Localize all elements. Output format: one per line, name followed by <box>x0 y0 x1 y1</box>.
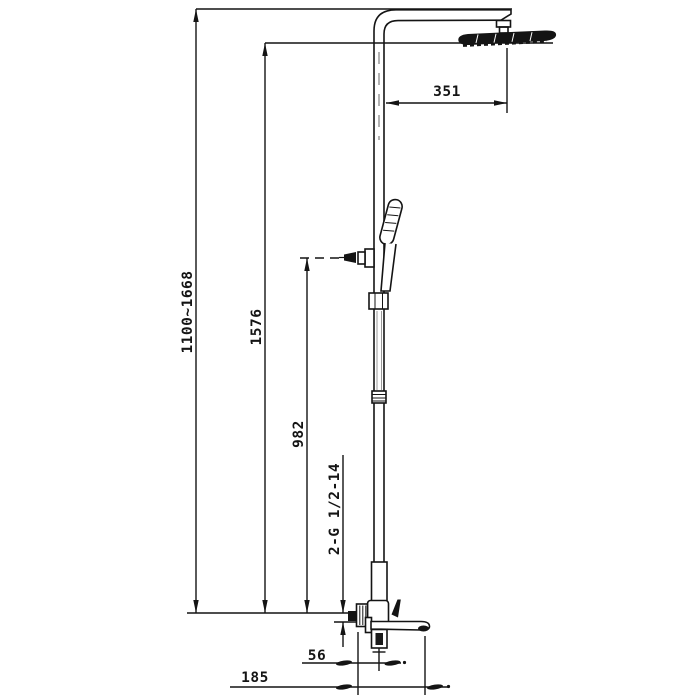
arrow-left-icon <box>386 100 399 105</box>
slider-clamp <box>365 249 374 267</box>
head-connector-block <box>497 21 511 28</box>
slider-clamp-collar <box>358 252 365 264</box>
dimension-lines-group <box>187 9 553 695</box>
technical-drawing-canvas: 1100~1668 1576 982 2-G 1/2-14 351 56 185 <box>0 0 700 700</box>
dim-label-arm-reach: 351 <box>433 84 461 100</box>
mixer-assembly <box>348 562 430 648</box>
arrowheads-group <box>193 9 507 690</box>
dim-label-wall-to-spout: 185 <box>241 670 269 686</box>
arrow-down-icon <box>193 600 198 613</box>
arrow-down-icon <box>340 600 345 613</box>
hand-shower-head <box>378 198 403 246</box>
arrow-up-icon <box>304 258 309 271</box>
arrow-up-icon <box>340 622 345 635</box>
supply-tube <box>372 562 388 601</box>
dim-label-hand-shower-height: 982 <box>291 420 307 448</box>
arrow-down-icon <box>304 600 309 613</box>
riser-pipe-inner <box>384 20 501 562</box>
escutcheon-inner <box>376 633 384 645</box>
dim-terminator <box>427 684 444 691</box>
arrow-up-icon <box>262 43 267 56</box>
spout-outlet <box>418 626 429 632</box>
diverter-lever <box>392 600 401 618</box>
dim-label-overall-height: 1100~1668 <box>180 270 196 353</box>
dim-terminator <box>384 660 401 667</box>
dim-label-rain-head-height: 1576 <box>249 309 265 346</box>
dimension-labels-group: 1100~1668 1576 982 2-G 1/2-14 351 56 185 <box>180 84 461 686</box>
dim-terminator-dot <box>403 661 406 664</box>
hand-shower <box>339 198 404 403</box>
dim-terminator-dot <box>447 685 450 688</box>
hose-coupling-nut <box>369 293 388 309</box>
shower-system-dimension-drawing: 1100~1668 1576 982 2-G 1/2-14 351 56 185 <box>0 0 700 700</box>
fixture-group <box>339 10 556 648</box>
shower-arm-cap <box>501 10 511 20</box>
arrow-down-icon <box>262 600 267 613</box>
clamp-knob <box>344 252 356 263</box>
arrow-right-icon <box>494 100 507 105</box>
arrow-up-icon <box>193 9 198 22</box>
dim-terminator <box>336 684 353 691</box>
dim-label-wall-to-riser: 56 <box>308 648 326 664</box>
head-ball-joint <box>500 27 509 33</box>
dim-terminator <box>336 660 353 667</box>
dim-label-inlet-thread: 2-G 1/2-14 <box>327 463 343 555</box>
